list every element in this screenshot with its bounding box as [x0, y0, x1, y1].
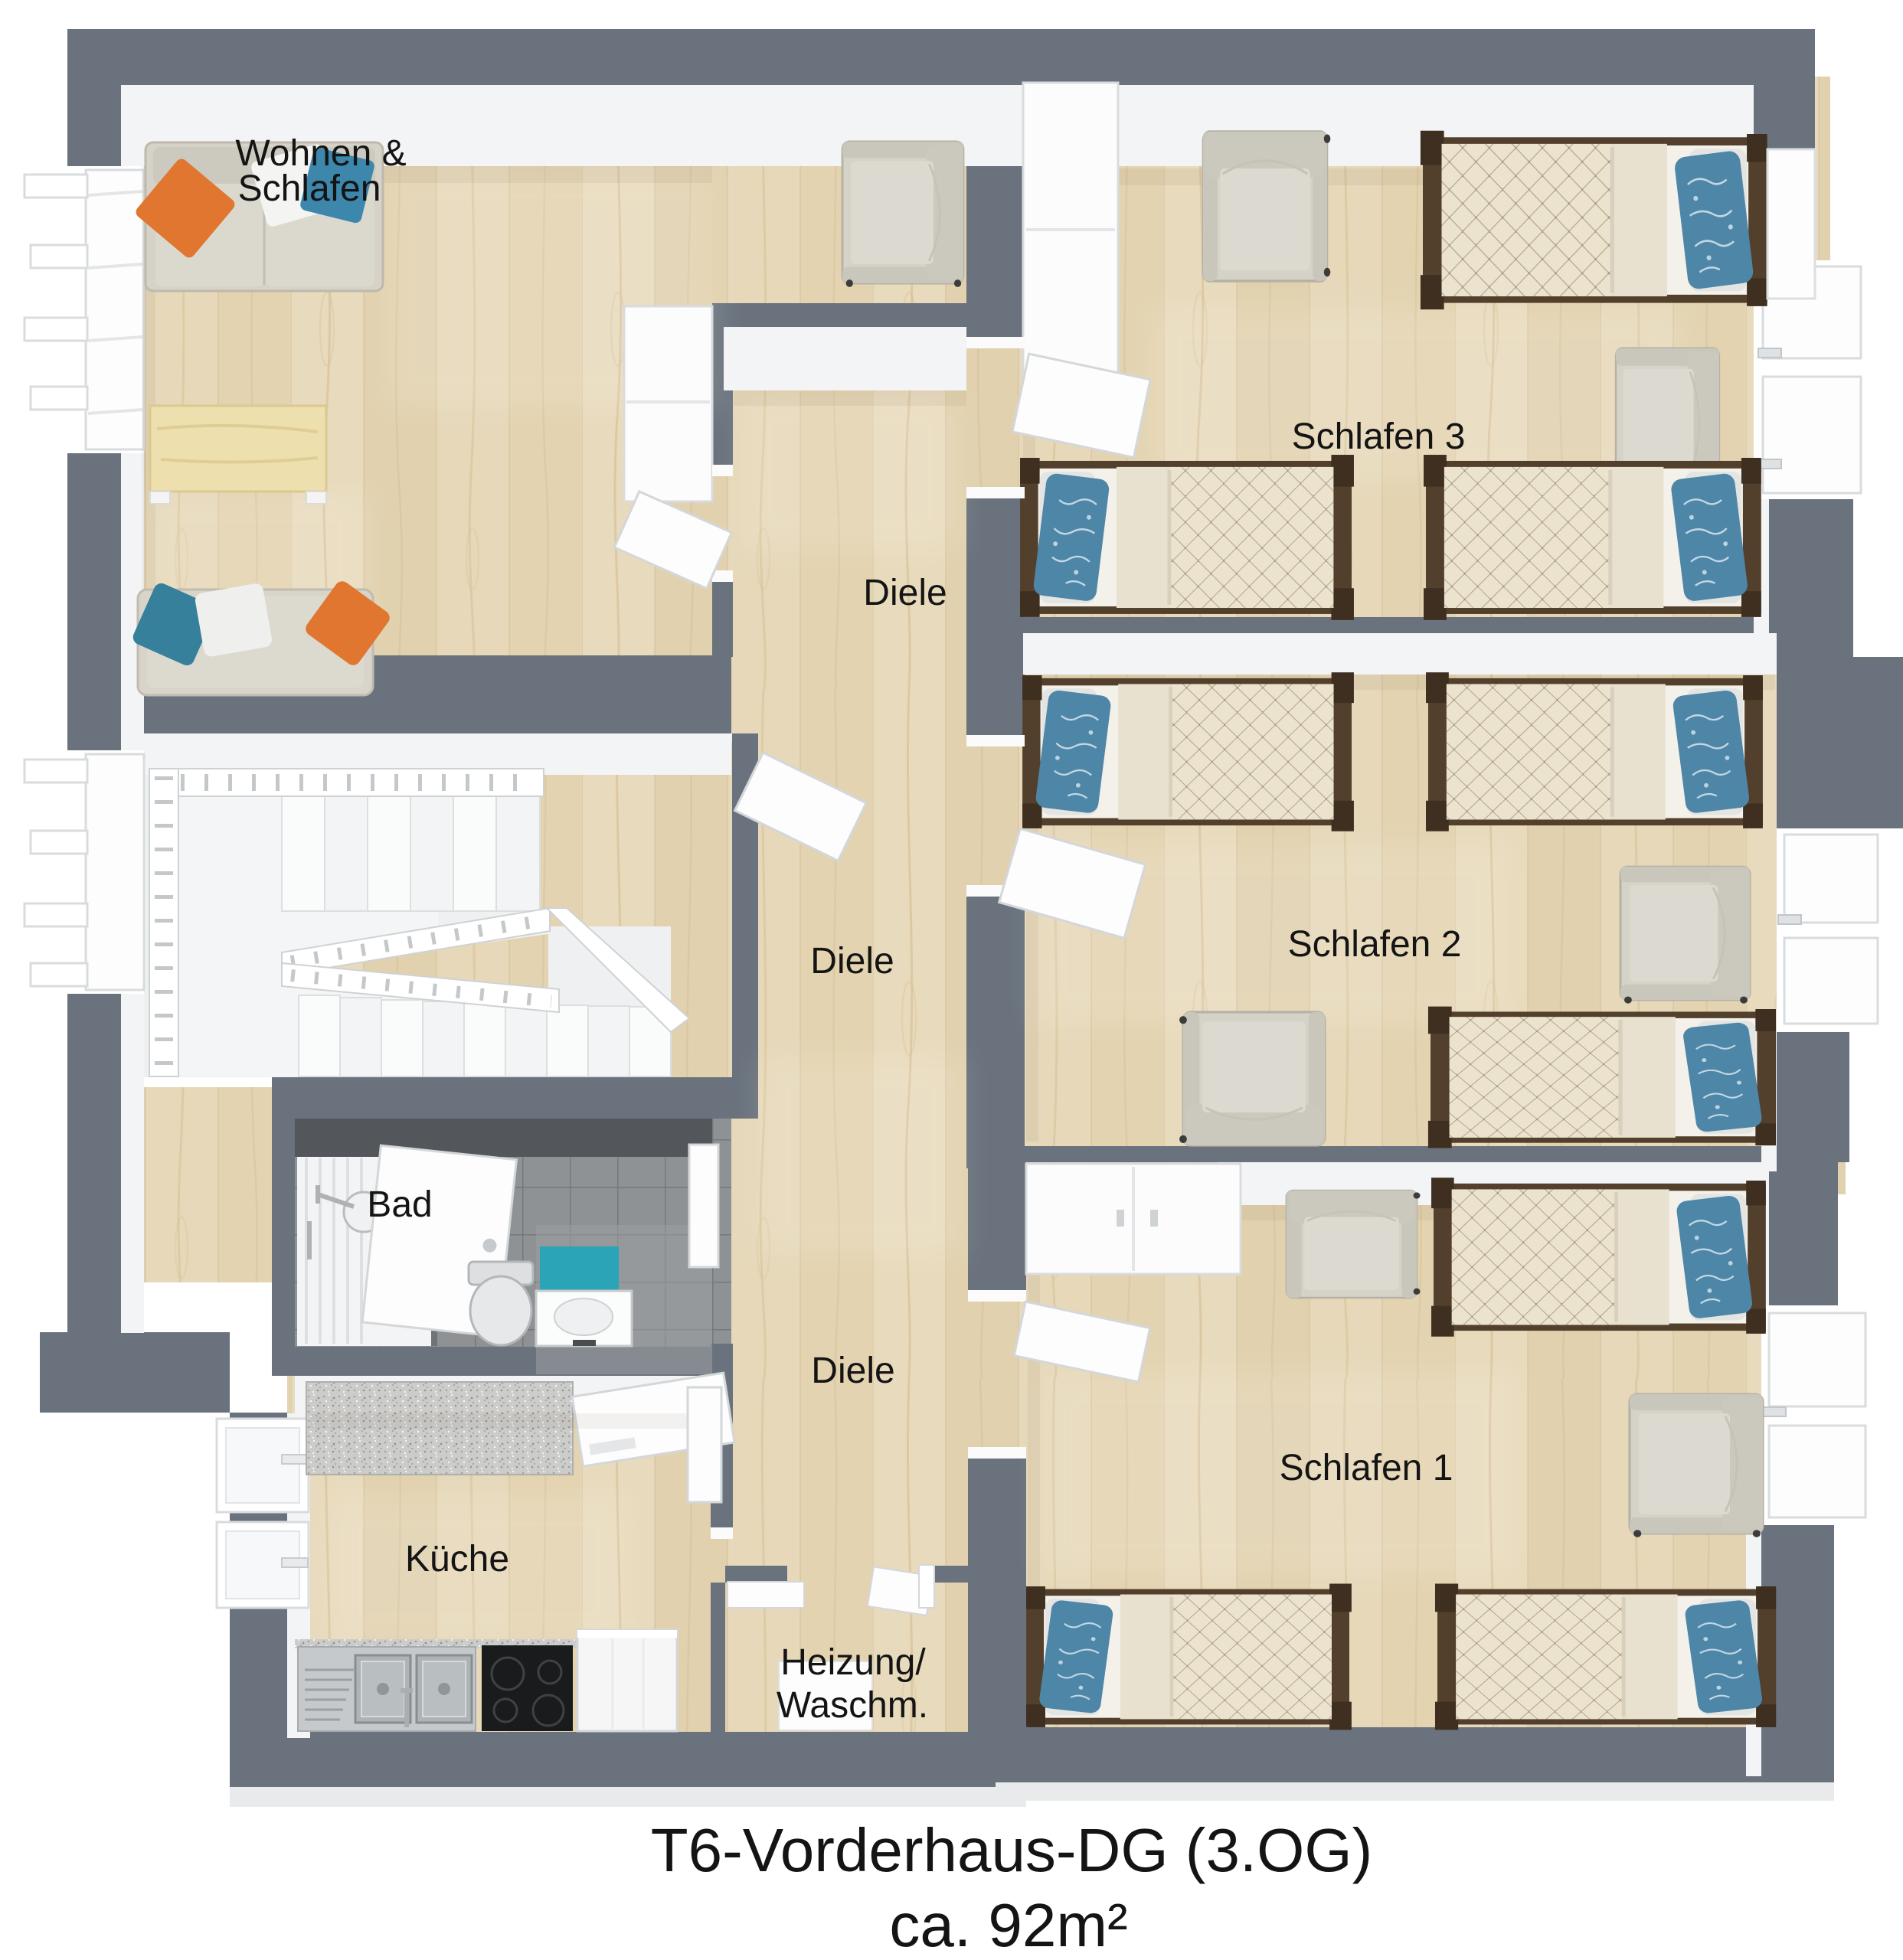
svg-text:Diele: Diele — [863, 573, 947, 613]
svg-text:Schlafen 2: Schlafen 2 — [1288, 924, 1462, 965]
svg-text:Schlafen 3: Schlafen 3 — [1292, 416, 1466, 457]
svg-text:Diele: Diele — [810, 941, 894, 982]
svg-text:ca. 92m²: ca. 92m² — [889, 1891, 1127, 1959]
svg-text:Waschm.: Waschm. — [777, 1685, 928, 1726]
svg-text:Heizung/: Heizung/ — [780, 1642, 926, 1683]
svg-text:Küche: Küche — [405, 1539, 509, 1579]
svg-text:T6-Vorderhaus-DG (3.OG): T6-Vorderhaus-DG (3.OG) — [651, 1816, 1373, 1884]
svg-text:Schlafen: Schlafen — [238, 168, 381, 209]
svg-text:Schlafen 1: Schlafen 1 — [1280, 1448, 1453, 1488]
svg-text:Bad: Bad — [367, 1184, 432, 1225]
svg-text:Diele: Diele — [811, 1351, 894, 1391]
